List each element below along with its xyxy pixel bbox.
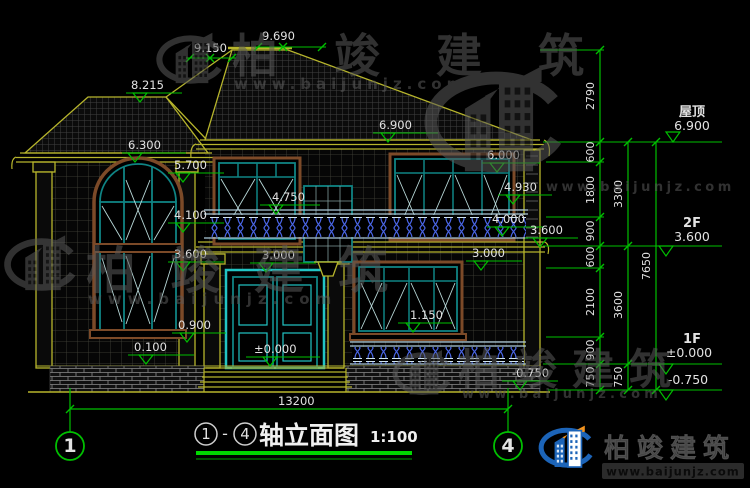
mark-4930: 4.930 (504, 180, 537, 194)
mark-8215: 8.215 (131, 78, 164, 92)
watermark-url-middle: www.baijunjz.com (88, 290, 337, 308)
axis-bubble-left-label: 1 (63, 435, 76, 457)
chain-vertical-lines (600, 50, 656, 390)
balcony-balustrade (204, 210, 528, 238)
title-axis-from: 1 (201, 425, 211, 443)
watermark-url-right: www.baijunjz.com (546, 180, 735, 195)
brand-logo: 柏竣建筑 www.baijunjz.com (541, 426, 744, 479)
mark-5700: 5.700 (174, 158, 207, 172)
mark-1150: 1.150 (410, 308, 443, 322)
left-wing-roof-face (25, 97, 208, 153)
mark-4100: 4.100 (174, 208, 207, 222)
mark-0100: 0.100 (134, 340, 167, 354)
mark-6300: 6.300 (128, 138, 161, 152)
chain-inner-900a: 900 (584, 221, 597, 242)
mark-4000: 4.000 (492, 212, 525, 226)
title-block: 1 - 4 轴立面图 1:100 (195, 421, 418, 459)
cad-elevation-sheet: 9.690 9.150 8.215 6.300 6.900 6.000 5.70… (0, 0, 750, 488)
title-dash: - (222, 424, 228, 443)
chain-middle-3600: 3600 (612, 291, 625, 319)
chain-inner-2790: 2790 (584, 82, 597, 110)
drawing-title: 轴立面图 (259, 421, 359, 450)
chain-inner-600b: 600 (584, 247, 597, 268)
title-axis-to: 4 (240, 425, 250, 443)
elevation-canvas: 9.690 9.150 8.215 6.300 6.900 6.000 5.70… (0, 0, 750, 488)
mark-0900: 0.900 (178, 318, 211, 332)
mark-6900: 6.900 (379, 118, 412, 132)
brand-logo-icon (541, 426, 590, 467)
mark-4750: 4.750 (272, 190, 305, 204)
level-2f-value: 3.600 (674, 229, 710, 244)
brand-logo-url: www.baijunjz.com (606, 465, 739, 479)
brand-logo-name: 柏竣建筑 (604, 433, 736, 464)
house-elevation (12, 48, 550, 392)
chain-inner-2100: 2100 (584, 288, 597, 316)
mark-0000: ±0.000 (254, 342, 297, 356)
level-roof-value: 6.900 (674, 118, 710, 133)
watermark-url-bottom: www.baijunjz.com (462, 387, 662, 402)
chain-inner-600a: 600 (584, 142, 597, 163)
mark-3600-right: 3.600 (530, 223, 563, 237)
entrance-steps (198, 368, 352, 392)
overall-width-label: 13200 (278, 394, 315, 408)
drawing-scale: 1:100 (370, 428, 418, 446)
mark-3000-right: 3.000 (472, 246, 505, 260)
watermark-url-top: www.baijunjz.com (234, 75, 467, 93)
axis-bubble-right-label: 4 (501, 435, 514, 457)
title-underline-thick (196, 451, 412, 455)
chain-outer-7650: 7650 (640, 252, 653, 280)
